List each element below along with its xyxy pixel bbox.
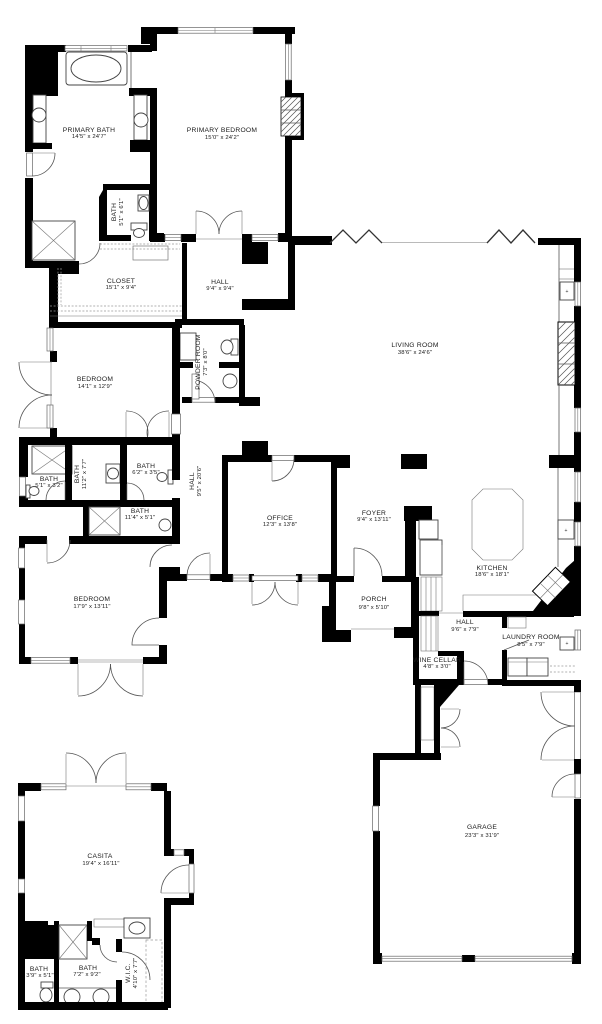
svg-text:17'9" x 13'11": 17'9" x 13'11" [73, 604, 110, 610]
svg-text:6'2" x 3'5": 6'2" x 3'5" [132, 470, 159, 476]
svg-text:CASITA: CASITA [87, 853, 112, 860]
svg-text:+: + [566, 289, 569, 295]
svg-text:BATH: BATH [137, 463, 155, 470]
svg-text:11'2" x 7'7": 11'2" x 7'7" [82, 459, 88, 489]
svg-text:BATH: BATH [30, 966, 48, 973]
svg-text:18'6" x 18'1": 18'6" x 18'1" [475, 572, 509, 578]
svg-text:4'8" x 3'0": 4'8" x 3'0" [423, 664, 450, 670]
svg-text:BATH: BATH [40, 476, 58, 483]
svg-text:GARAGE: GARAGE [467, 824, 497, 831]
svg-text:WINE CELLAR: WINE CELLAR [413, 657, 461, 664]
svg-text:15'0" x 24'2": 15'0" x 24'2" [205, 135, 239, 141]
svg-text:LIVING ROOM: LIVING ROOM [391, 342, 439, 349]
svg-text:9'8" x 5'10": 9'8" x 5'10" [359, 605, 390, 611]
svg-text:PRIMARY BATH: PRIMARY BATH [63, 127, 115, 134]
svg-text:11'4" x 5'1": 11'4" x 5'1" [125, 515, 155, 521]
svg-text:HALL: HALL [456, 619, 474, 626]
svg-text:4'10" x 7'7": 4'10" x 7'7" [133, 958, 139, 989]
svg-text:PRIMARY BEDROOM: PRIMARY BEDROOM [187, 127, 258, 134]
svg-text:14'1" x 12'9": 14'1" x 12'9" [78, 384, 112, 390]
svg-text:3'9" x 5'1": 3'9" x 5'1" [26, 973, 53, 979]
svg-text:HALL: HALL [189, 472, 196, 490]
svg-text:12'3" x 13'8": 12'3" x 13'8" [263, 522, 297, 528]
svg-text:7'3" x 8'0": 7'3" x 8'0" [203, 348, 209, 375]
svg-text:BATH: BATH [111, 203, 118, 221]
svg-text:PORCH: PORCH [361, 596, 386, 603]
svg-text:5'1" x 3'2": 5'1" x 3'2" [35, 483, 62, 489]
svg-text:W.I.C.: W.I.C. [125, 963, 132, 983]
svg-text:BEDROOM: BEDROOM [77, 376, 113, 383]
svg-text:15'1" x 9'4": 15'1" x 9'4" [106, 285, 137, 291]
svg-text:BEDROOM: BEDROOM [74, 596, 110, 603]
svg-text:+: + [566, 641, 569, 647]
svg-text:9'4" x 13'11": 9'4" x 13'11" [357, 517, 391, 523]
svg-text:14'5" x 24'7": 14'5" x 24'7" [72, 134, 106, 140]
svg-text:9'6" x 7'9": 9'6" x 7'9" [451, 627, 478, 633]
svg-text:19'4" x 16'11": 19'4" x 16'11" [82, 861, 119, 867]
svg-text:5'1" x 6'1": 5'1" x 6'1" [119, 198, 125, 225]
svg-text:FOYER: FOYER [362, 510, 386, 517]
svg-text:POWDER ROOM: POWDER ROOM [195, 334, 202, 390]
svg-text:CLOSET: CLOSET [107, 278, 135, 285]
svg-text:HALL: HALL [211, 279, 229, 286]
svg-text:23'3" x 31'9": 23'3" x 31'9" [465, 833, 499, 839]
svg-text:9'4" x 9'4": 9'4" x 9'4" [206, 286, 233, 292]
svg-text:7'2" x 9'2": 7'2" x 9'2" [73, 972, 100, 978]
svg-text:KITCHEN: KITCHEN [476, 565, 507, 572]
svg-text:OFFICE: OFFICE [267, 515, 293, 522]
svg-text:8'5" x 7'9": 8'5" x 7'9" [517, 642, 544, 648]
svg-text:38'6" x 24'6": 38'6" x 24'6" [398, 350, 432, 356]
svg-text:BATH: BATH [79, 965, 97, 972]
svg-text:BATH: BATH [74, 465, 81, 483]
svg-text:+: + [565, 528, 568, 534]
svg-text:9'5" x 20'6": 9'5" x 20'6" [197, 466, 203, 497]
svg-text:BATH: BATH [131, 508, 149, 515]
svg-text:LAUNDRY ROOM: LAUNDRY ROOM [502, 634, 560, 641]
